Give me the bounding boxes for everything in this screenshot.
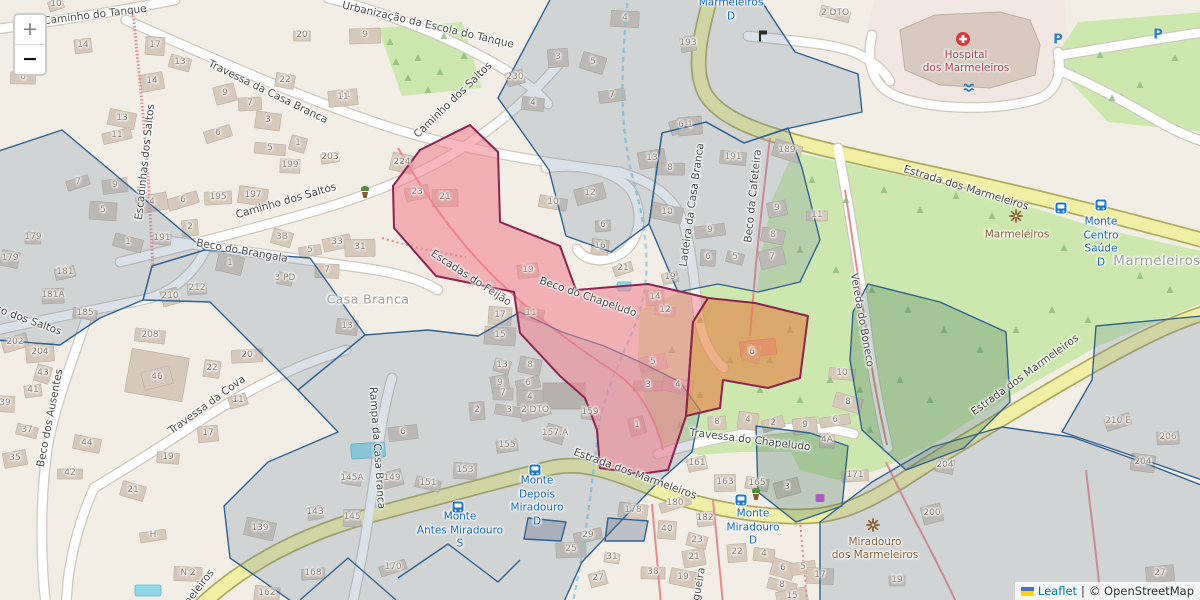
map-tiles-layer bbox=[0, 0, 1200, 600]
zoom-out-button[interactable]: − bbox=[15, 45, 45, 74]
hospital-building bbox=[900, 12, 1040, 88]
osm-credit-link[interactable]: © OpenStreetMap bbox=[1089, 584, 1194, 598]
attribution-separator: | bbox=[1081, 584, 1085, 598]
map-canvas[interactable]: Caminho do TanqueUrbanização da Escola d… bbox=[0, 0, 1200, 600]
attribution-bar: Leaflet | © OpenStreetMap bbox=[1015, 582, 1200, 600]
ukraine-flag-icon bbox=[1021, 587, 1034, 596]
leaflet-link[interactable]: Leaflet bbox=[1038, 584, 1077, 598]
zoom-control: + − bbox=[13, 13, 47, 76]
zoom-in-button[interactable]: + bbox=[15, 15, 45, 45]
